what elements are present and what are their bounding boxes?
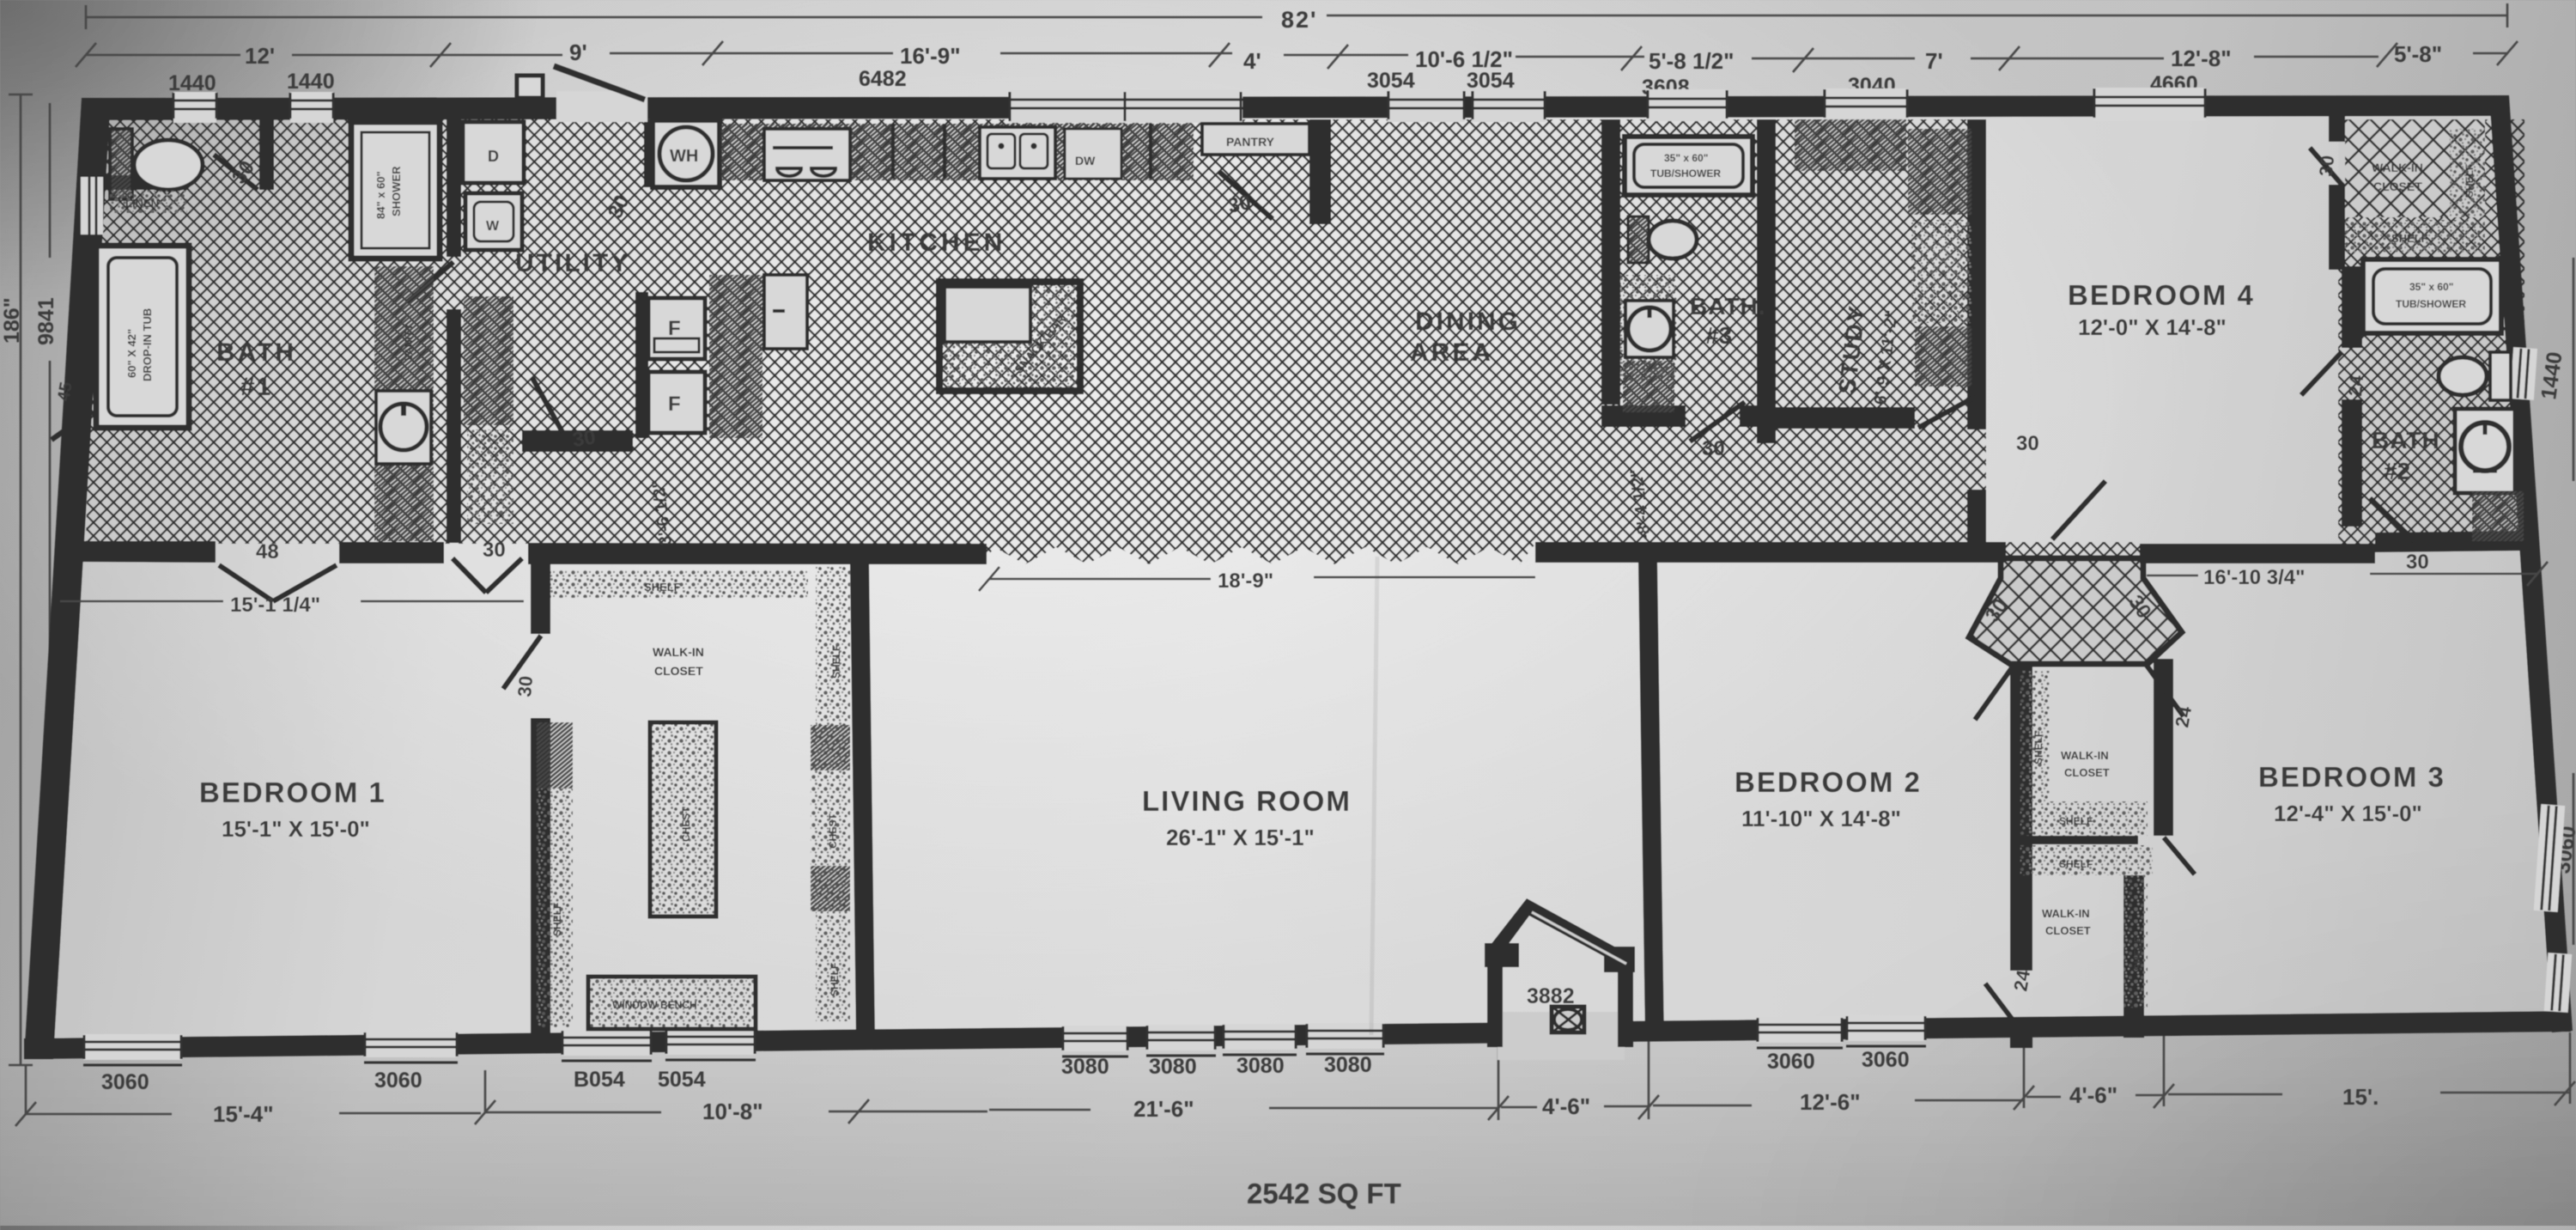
svg-text:5054: 5054	[658, 1068, 706, 1092]
svg-text:186": 186"	[0, 297, 24, 344]
svg-text:DROP-IN TUB: DROP-IN TUB	[141, 308, 154, 381]
svg-text:3060: 3060	[1862, 1048, 1910, 1072]
svg-text:BATH: BATH	[2372, 427, 2440, 454]
svg-text:CLOSET: CLOSET	[2045, 924, 2091, 937]
svg-text:48: 48	[256, 540, 279, 563]
svg-text:24: 24	[2344, 374, 2367, 397]
svg-text:SHOWER: SHOWER	[390, 166, 403, 216]
svg-text:16'-10 3/4": 16'-10 3/4"	[2203, 566, 2306, 589]
svg-text:BEDROOM 1: BEDROOM 1	[199, 776, 386, 808]
svg-text:PANTRY: PANTRY	[1226, 135, 1275, 149]
svg-text:82': 82'	[1281, 7, 1317, 33]
svg-text:W: W	[486, 219, 500, 234]
svg-text:#2: #2	[2384, 458, 2410, 484]
svg-text:UTILITY: UTILITY	[515, 249, 630, 277]
svg-text:BATH: BATH	[216, 338, 296, 367]
svg-text:3060: 3060	[1767, 1050, 1815, 1074]
svg-text:12'-4" X 15'-0": 12'-4" X 15'-0"	[2274, 801, 2422, 826]
svg-text:30: 30	[571, 425, 597, 451]
svg-text:WINDOW BENCH: WINDOW BENCH	[612, 999, 697, 1011]
svg-text:F: F	[668, 317, 681, 340]
svg-text:1440: 1440	[168, 71, 216, 95]
svg-text:#3: #3	[1705, 322, 1732, 349]
svg-text:3080: 3080	[1324, 1053, 1372, 1077]
svg-text:SHELF: SHELF	[2132, 937, 2144, 971]
svg-text:15'-4": 15'-4"	[213, 1101, 274, 1127]
svg-text:9841: 9841	[34, 297, 58, 345]
svg-text:D: D	[488, 148, 499, 165]
svg-text:F: F	[668, 393, 681, 416]
svg-text:24: 24	[2171, 704, 2196, 729]
svg-text:SHELF: SHELF	[2032, 731, 2044, 764]
svg-text:10'-8": 10'-8"	[702, 1099, 763, 1124]
svg-text:21'-6": 21'-6"	[1133, 1096, 1194, 1122]
svg-text:CLOSET: CLOSET	[654, 664, 703, 678]
svg-text:15'-1 1/4": 15'-1 1/4"	[230, 594, 320, 617]
svg-text:TUB/SHOWER: TUB/SHOWER	[1650, 167, 1721, 180]
svg-text:CHEST: CHEST	[680, 807, 692, 842]
svg-text:3080: 3080	[1149, 1055, 1197, 1079]
svg-text:SHELF: SHELF	[551, 903, 563, 936]
svg-text:26'-1" X 15'-1": 26'-1" X 15'-1"	[1166, 825, 1315, 850]
svg-text:SHELF: SHELF	[644, 581, 681, 594]
svg-text:24: 24	[2009, 968, 2034, 993]
svg-text:3080: 3080	[1061, 1055, 1109, 1079]
svg-text:WH: WH	[670, 147, 698, 166]
svg-text:35" x 60": 35" x 60"	[2409, 281, 2453, 293]
svg-text:VANITY: VANITY	[403, 324, 415, 361]
svg-text:12': 12'	[245, 43, 275, 69]
svg-text:SHELF: SHELF	[829, 963, 841, 996]
svg-text:LINEN: LINEN	[125, 197, 159, 210]
svg-text:KITCHEN: KITCHEN	[867, 228, 1005, 257]
svg-text:30: 30	[2406, 551, 2429, 574]
svg-text:84" x 60": 84" x 60"	[374, 171, 387, 219]
svg-text:TUB/SHOWER: TUB/SHOWER	[2396, 298, 2466, 310]
svg-text:WALK-IN: WALK-IN	[2372, 161, 2423, 174]
svg-text:LIVING ROOM: LIVING ROOM	[1142, 785, 1352, 817]
svg-text:45: 45	[54, 381, 76, 403]
svg-text:2542 SQ FT: 2542 SQ FT	[1247, 1178, 1401, 1209]
svg-text:B054: B054	[574, 1068, 625, 1092]
svg-text:3882: 3882	[1527, 984, 1575, 1008]
svg-text:WALK-IN: WALK-IN	[653, 645, 704, 659]
svg-text:CHEST: CHEST	[827, 813, 839, 849]
svg-text:5'-8 1/2": 5'-8 1/2"	[1649, 48, 1734, 74]
svg-text:16'-9": 16'-9"	[900, 43, 961, 69]
svg-text:CLOSET: CLOSET	[2064, 766, 2110, 779]
svg-text:35" x 60": 35" x 60"	[1664, 152, 1708, 164]
svg-text:9': 9'	[569, 40, 587, 65]
svg-text:30: 30	[2016, 432, 2039, 455]
svg-text:3060: 3060	[374, 1069, 422, 1093]
svg-text:12'-6": 12'-6"	[1800, 1089, 1861, 1115]
svg-text:15'-1" X 15'-0": 15'-1" X 15'-0"	[222, 816, 370, 842]
svg-text:5'-8": 5'-8"	[2394, 41, 2442, 67]
svg-text:60" X 42": 60" X 42"	[125, 329, 138, 378]
svg-text:WALK-IN: WALK-IN	[2061, 749, 2109, 762]
svg-text:DINING: DINING	[1415, 307, 1521, 336]
svg-text:#1: #1	[240, 373, 272, 401]
svg-text:AREA: AREA	[1410, 338, 1493, 367]
svg-text:SHELF: SHELF	[2391, 232, 2428, 245]
svg-text:4'-6": 4'-6"	[1542, 1093, 1590, 1119]
svg-text:DW: DW	[1075, 154, 1096, 167]
svg-text:CLOSET: CLOSET	[2373, 180, 2422, 193]
svg-text:18'-9": 18'-9"	[1218, 569, 1273, 593]
svg-text:4'-6": 4'-6"	[2069, 1082, 2117, 1108]
svg-text:7': 7'	[1925, 48, 1943, 74]
svg-text:3060: 3060	[101, 1070, 149, 1094]
svg-text:BEDROOM 2: BEDROOM 2	[1735, 766, 1922, 798]
svg-text:1440: 1440	[2537, 350, 2567, 401]
svg-text:11'-10" X 14'-8": 11'-10" X 14'-8"	[1741, 806, 1901, 831]
svg-text:SHELF: SHELF	[2059, 858, 2093, 870]
svg-text:3054: 3054	[1367, 69, 1415, 93]
svg-text:30: 30	[1226, 191, 1254, 218]
svg-text:SHELF: SHELF	[2059, 815, 2093, 827]
svg-text:30: 30	[2315, 155, 2338, 178]
svg-text:15'.: 15'.	[2342, 1084, 2379, 1110]
svg-text:1440: 1440	[287, 70, 335, 94]
svg-text:30: 30	[483, 539, 506, 562]
svg-text:30: 30	[1702, 437, 1725, 460]
svg-text:BEDROOM 3: BEDROOM 3	[2258, 761, 2445, 793]
svg-text:BEDROOM 4: BEDROOM 4	[2068, 279, 2255, 311]
svg-text:3080: 3080	[1236, 1054, 1285, 1078]
svg-text:12'-0" X 14'-8": 12'-0" X 14'-8"	[2078, 314, 2227, 340]
svg-text:SHELF: SHELF	[830, 645, 842, 679]
svg-text:12'-8": 12'-8"	[2171, 46, 2232, 71]
svg-text:30: 30	[513, 675, 537, 698]
svg-text:4': 4'	[1243, 48, 1261, 74]
svg-text:6482: 6482	[859, 67, 907, 91]
svg-text:BATH.: BATH.	[1690, 293, 1765, 320]
svg-text:WALK-IN: WALK-IN	[2042, 907, 2090, 920]
svg-text:3054: 3054	[1467, 69, 1515, 93]
svg-text:SHELF: SHELF	[2464, 164, 2476, 198]
